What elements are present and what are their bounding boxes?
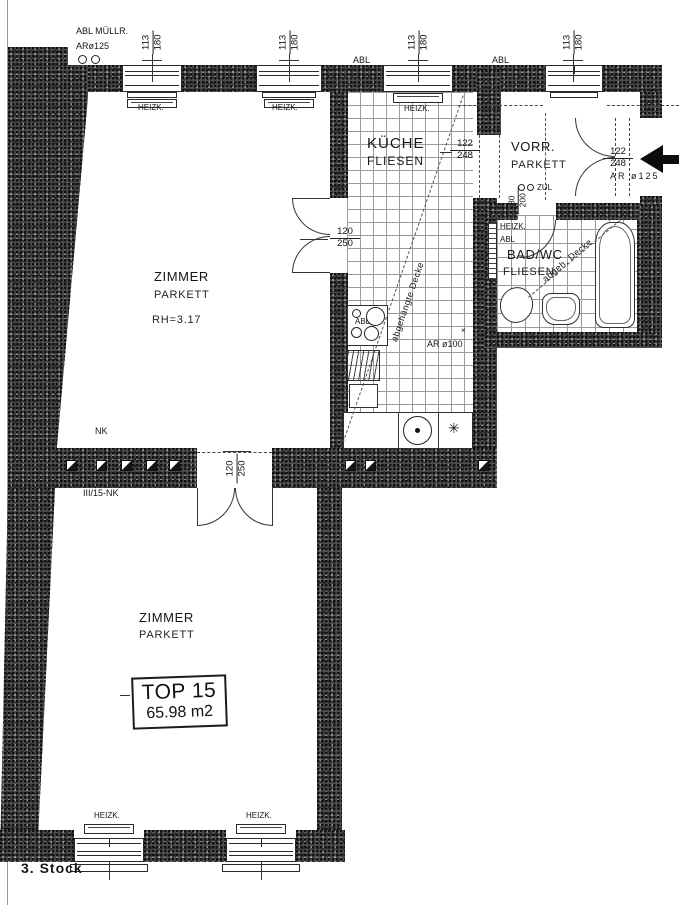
ar125-right-label: AR ø125	[610, 172, 679, 182]
wall-vorr-bad-b	[556, 203, 640, 220]
window	[545, 65, 603, 92]
window	[226, 838, 296, 862]
zul-label: ZUL	[537, 184, 552, 193]
wall-bad-right	[637, 205, 662, 348]
heizk-label: HEIZK.	[404, 105, 430, 114]
wall-bottom-2	[144, 830, 226, 862]
freezer-star: ✳	[448, 421, 460, 436]
hatch-square	[365, 460, 376, 471]
unit-label-box: TOP 15 65.98 m2	[131, 674, 227, 729]
door-jamb-right	[272, 448, 277, 488]
wall-zimmer-kueche-a	[330, 92, 348, 198]
room-name-kueche: KÜCHE	[367, 136, 425, 153]
floor-plan: 113180 113180 113180 113180 ABL MÜLLR. A…	[0, 0, 679, 911]
opening-dim-label: 122248	[450, 139, 480, 162]
heizk-label: HEIZK.	[138, 104, 164, 113]
window-dim-label: 113180	[563, 30, 586, 54]
abl-label: ABL	[355, 318, 370, 327]
door-leaf-arc	[197, 488, 235, 526]
wall-middle-band-right	[277, 448, 497, 488]
room-name-vorraum: VORR.	[511, 140, 555, 154]
stove-burner	[351, 327, 362, 338]
floor-level-label: 3. Stock	[21, 861, 83, 876]
room-name-zimmer-upper: ZIMMER	[154, 270, 209, 284]
ar100-label: AR ø100	[427, 340, 463, 350]
dim-leader	[152, 54, 153, 82]
hatch-square	[169, 460, 180, 471]
entrance-arrow-tail	[662, 155, 679, 164]
window-sill	[262, 92, 316, 98]
bath-radiator	[488, 222, 497, 280]
vent-circle	[91, 55, 100, 64]
window-sill	[127, 92, 177, 98]
wall-top-3	[322, 65, 383, 92]
dim-tick	[120, 695, 130, 696]
radiator	[393, 93, 443, 103]
ar125-label: ARø125	[76, 42, 109, 52]
vent-circle	[78, 55, 87, 64]
door-dim-label: 120250	[330, 227, 360, 250]
heizk-label: HEIZK.	[246, 812, 272, 821]
room-name-zimmer-lower: ZIMMER	[139, 611, 194, 625]
room-floor-kueche: FLIESEN	[367, 155, 424, 168]
radiator	[84, 824, 134, 834]
hatch-square	[478, 460, 489, 471]
window-dim-label: 113180	[142, 30, 165, 54]
heizk-label: HEIZK.	[272, 104, 298, 113]
counter-divider	[398, 413, 399, 448]
wall-top-5	[603, 65, 662, 92]
wall-bottom-3	[296, 830, 345, 862]
nk-label: NK	[95, 427, 108, 437]
toilet	[542, 293, 580, 325]
hatch-square	[121, 460, 132, 471]
wall-left-upper	[8, 47, 88, 448]
stove-burner	[364, 326, 379, 341]
dim-tick	[223, 451, 251, 452]
dim-leader	[573, 54, 574, 82]
washing-machine-dot	[415, 428, 420, 433]
wall-top-2	[182, 65, 256, 92]
wall-lower-right	[317, 488, 342, 862]
counter-divider	[438, 413, 439, 448]
window-dim-label: 113180	[279, 30, 302, 54]
heizk-label: HEIZK.	[94, 812, 120, 821]
door-jamb-left	[192, 448, 197, 488]
unit-area: 65.98 m2	[142, 703, 217, 724]
unit-number: TOP 15	[141, 679, 216, 706]
room-height-label: RH=3.17	[152, 314, 201, 326]
window-sill	[550, 92, 598, 98]
nk-line-label: III/15-NK	[83, 489, 119, 499]
abl-label: ABL	[353, 56, 370, 66]
entrance-arrow-icon	[640, 145, 663, 173]
door-leaf-arc	[292, 236, 330, 273]
wall-kueche-vorr-stub	[477, 70, 501, 135]
middle-door-dim-label: 120250	[226, 453, 249, 483]
room-floor-zimmer-lower: PARKETT	[139, 629, 195, 641]
room-floor-zimmer-upper: PARKETT	[154, 289, 210, 301]
hatch-square	[96, 460, 107, 471]
bathtub	[595, 222, 635, 328]
opening-line	[499, 135, 500, 198]
dim-leader	[261, 862, 262, 880]
door-leaf-arc	[292, 198, 330, 235]
dim-tick	[300, 239, 328, 240]
abl-label: ABL	[492, 56, 509, 66]
hatch-square	[66, 460, 77, 471]
kitchen-sink	[349, 384, 378, 408]
wall-bad-bottom	[485, 332, 662, 348]
window	[74, 838, 144, 862]
cross-mark: ×	[461, 327, 466, 336]
door-leaf-arc	[235, 488, 273, 526]
wall-bottom-1	[0, 830, 74, 862]
drainboard	[347, 350, 380, 381]
dim-leader	[418, 54, 419, 82]
abl-muellr-label: ABL MÜLLR.	[76, 27, 128, 37]
room-floor-vorraum: PARKETT	[511, 159, 567, 171]
wall-left-lower	[0, 488, 55, 862]
section-line	[458, 105, 543, 106]
hatch-square	[345, 460, 356, 471]
window-dim-label: 113180	[408, 30, 431, 54]
dim-leader	[289, 54, 290, 82]
bath-door-dim-label: 80200	[508, 186, 529, 214]
abl-label: ABL	[500, 236, 515, 245]
radiator	[236, 824, 286, 834]
dim-leader	[109, 862, 110, 880]
section-line	[607, 105, 679, 106]
entrance-dim-label: 122248	[603, 147, 633, 170]
hatch-square	[146, 460, 157, 471]
